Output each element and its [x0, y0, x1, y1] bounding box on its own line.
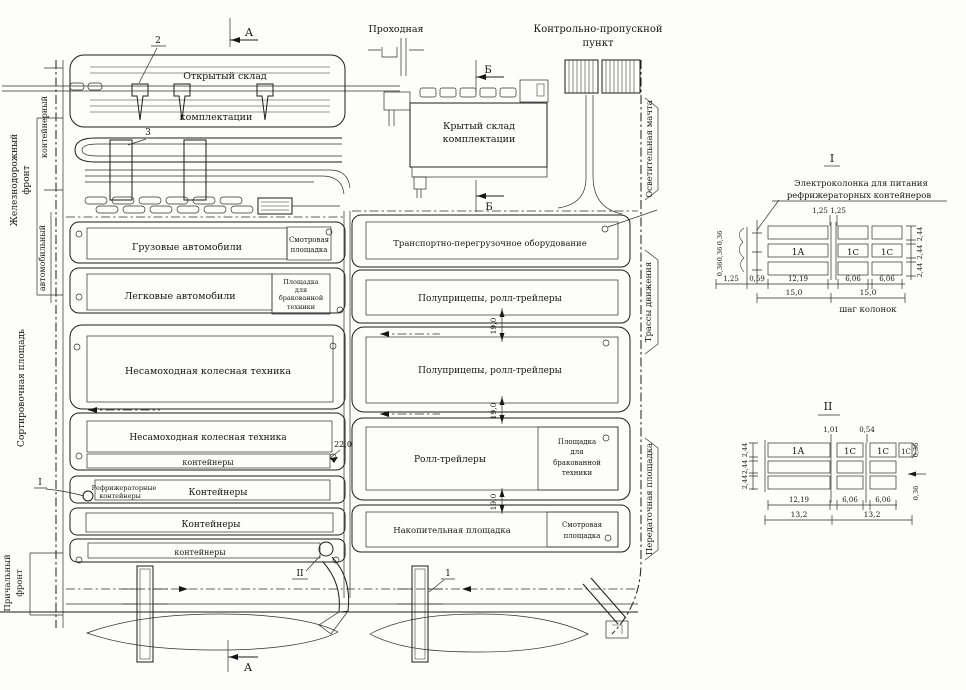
dim-label: 2,44: [741, 443, 749, 457]
dock-bump: [480, 88, 496, 97]
left-column: Грузовые автомобили Смотровая площадка Л…: [70, 222, 345, 579]
block-containers-2: Контейнеры: [70, 508, 345, 535]
dim-19-2: 19,0: [489, 396, 505, 424]
dim-label: 15,0: [786, 288, 803, 297]
loading-band: [412, 167, 547, 177]
dim-19-3: 19,0: [489, 488, 505, 514]
mast-circle: [76, 453, 82, 459]
sorting-area-label: Сортировочная площадь: [17, 329, 27, 447]
detail-ii: II 1А 1С 1С 1С 1,01 0,54 2,44 2,44 2,44: [741, 400, 926, 525]
section-a-top-label: А: [245, 26, 254, 39]
automobile-front-label: автомобильный: [38, 225, 47, 291]
rejected-pad-right-label: Площадка: [558, 438, 596, 446]
rejected-pad-label: техники: [287, 303, 315, 311]
mast-circle: [605, 535, 611, 541]
berth-front-label-1: Причальный: [3, 554, 13, 612]
gatehouse-gate: [368, 38, 424, 76]
rejected-pad-label: Площадка: [283, 278, 319, 286]
detail-ii-cell-1c: 1С: [901, 448, 911, 456]
covered-warehouse-label-2: комплектации: [443, 134, 516, 145]
detail-i-cell-1a: 1А: [792, 248, 805, 258]
right-column: Транспортно-перегрузочное оборудование П…: [352, 210, 657, 592]
traffic-routes-label: Трассы движения: [644, 262, 654, 342]
transfer-area-label: Передаточная площадка: [645, 443, 655, 555]
rejected-pad-label: бракованной: [279, 294, 323, 302]
reefer-label-2: контейнеры: [99, 492, 141, 500]
checkpoint-building: [602, 60, 640, 93]
drawing-canvas: контейнерный Железнодорожный фронт автом…: [0, 0, 966, 690]
rail-crossing-ticks: [122, 589, 443, 604]
section-b-bottom-label: Б: [485, 202, 492, 213]
mast-leader: [608, 210, 657, 227]
detail-i-cell-1c: 1С: [847, 248, 859, 258]
checkpoint-label-2: пункт: [583, 38, 614, 49]
berth-area: А: [0, 557, 638, 674]
callout-3: 3: [145, 128, 151, 138]
detail-ii-target-circle: [319, 542, 333, 556]
block-wheeled-1-label: Несамоходная колесная техника: [125, 366, 291, 377]
rejected-pad-label: для: [295, 286, 307, 294]
road-arrow: [88, 407, 97, 413]
section-a-bottom-label: А: [244, 661, 253, 674]
callout-detail-ii: II: [296, 569, 304, 579]
dim-label: 2,44: [916, 227, 924, 241]
inspection-pad-right-label: Смотровая: [562, 521, 603, 529]
rail-wagon: [70, 83, 84, 90]
road-arrow: [380, 331, 389, 337]
dim-label: 0,36: [716, 231, 724, 245]
containers-label-2: Контейнеры: [182, 520, 241, 530]
open-warehouse-label-1: Открытый склад: [183, 71, 267, 82]
reefer-label-1: Рефрижераторные: [92, 484, 157, 492]
dim-label: 2,44: [916, 245, 924, 259]
block-trucks-label: Грузовые автомобили: [132, 242, 242, 253]
dim-label: 0,36: [912, 486, 920, 500]
open-warehouse-label-2: комплектации: [180, 112, 253, 123]
dim-label: 13,2: [791, 510, 808, 519]
inspection-pad-right-label: площадка: [564, 532, 601, 540]
rail-loop-inner: [82, 144, 342, 156]
lighting-mast-label: Осветительная мачта: [645, 100, 655, 198]
rail-wagon: [88, 83, 102, 90]
block-containers-strip: контейнеры II: [70, 539, 345, 579]
detail-ii-cell-1c: 1С: [844, 447, 856, 457]
block-rolltrailers: Ролл-трейлеры Площадка для бракованной т…: [352, 418, 630, 500]
dim-label: 0,36: [716, 247, 724, 261]
railway-front-label-2: фронт: [22, 165, 32, 194]
checkpoint: Контрольно-пропускной пункт: [352, 24, 663, 214]
dim-label: 2,44: [741, 460, 749, 474]
checkpoint-label-1: Контрольно-пропускной: [533, 24, 662, 35]
gatehouse-label: Проходная: [368, 24, 423, 35]
terminal-plan-drawing: контейнерный Железнодорожный фронт автом…: [0, 0, 966, 690]
rail-loop-outer: [75, 138, 342, 162]
block-cars-label: Легковые автомобили: [124, 291, 235, 302]
covered-warehouse: Крытый склад комплектации Б Б: [384, 60, 548, 213]
detail-i-cell-1c: 1С: [881, 248, 893, 258]
right-edge: Осветительная мачта Трассы движения Пере…: [612, 60, 658, 634]
section-b-top-label: Б: [484, 65, 491, 76]
block-trucks: Грузовые автомобили Смотровая площадка: [70, 222, 345, 263]
dim-label: 0,59: [749, 275, 765, 283]
rejected-pad-right-label: для: [570, 448, 584, 456]
left-edge: контейнерный Железнодорожный фронт автом…: [3, 60, 84, 628]
section-b-top: Б: [476, 60, 504, 92]
dim-brace: [739, 228, 744, 272]
detail-i: I Электроколонка для питания рефрижерато…: [716, 152, 947, 315]
rail-tracks-middle: [85, 170, 350, 194]
callout-1-leader: [429, 579, 455, 592]
dim-label: 1,01: [823, 426, 839, 434]
block-cars: Легковые автомобили Площадка для бракова…: [70, 268, 345, 314]
rail-spur: [2, 86, 400, 91]
ship-left: [87, 614, 338, 650]
dim-label: 15,0: [860, 288, 877, 297]
dim-label: 6,06: [845, 275, 861, 283]
block-handling-equipment: Транспортно-перегрузочное оборудование: [352, 210, 657, 267]
containers-label-1: Контейнеры: [189, 488, 248, 498]
detail-ii-dims: 1,01 0,54 2,44 2,44 2,44 0,36 0,36 12,19…: [741, 426, 926, 525]
berth-front-label-2: фронт: [15, 569, 25, 597]
containers-strip-label-1: контейнеры: [182, 458, 234, 467]
detail-i-title: I: [830, 152, 834, 165]
dock-bump: [460, 88, 476, 97]
callout-2-leader: [139, 46, 166, 83]
inspection-pad-box-right: [547, 512, 618, 547]
rejected-pad-right-label: техники: [562, 469, 593, 477]
dim-label: 0,54: [859, 426, 875, 434]
side-tab: [414, 177, 426, 189]
dim-label: 1,25: [830, 207, 846, 215]
corner-ramp: [583, 578, 626, 624]
dim-label: 2,44: [741, 475, 749, 489]
detail-i-caption-1: Электроколонка для питания: [794, 179, 928, 189]
ship-right: [370, 614, 588, 652]
mast-circle: [76, 294, 82, 300]
section-a-top-arrow: [231, 37, 240, 43]
mast-circle: [76, 231, 82, 237]
block-accumulation: Накопительная площадка Смотровая площадк…: [352, 505, 630, 552]
detail-i-caption-leader: [757, 200, 947, 230]
dock-bump: [440, 88, 456, 97]
block-wheeled-2: Несамоходная колесная техника контейнеры: [70, 413, 345, 470]
block-wheeled-2-label: Несамоходная колесная техника: [129, 433, 287, 443]
block-rolltrailers-label: Ролл-трейлеры: [414, 455, 486, 465]
detail-ii-cell-1c: 1С: [877, 447, 889, 457]
road-arrow: [179, 586, 188, 592]
section-b-bottom: Б: [476, 180, 504, 213]
covered-warehouse-label-1: Крытый склад: [443, 121, 515, 132]
portal-crane-icon: [132, 84, 148, 120]
mast-circle: [74, 344, 80, 350]
detail-i-note: шаг колонок: [839, 305, 897, 315]
inspection-pad-label-1: Смотровая: [289, 236, 330, 244]
block-accumulation-label: Накопительная площадка: [393, 526, 511, 536]
side-tab: [384, 92, 410, 110]
gatehouse: Проходная: [368, 24, 424, 76]
dim-label: 1,25: [812, 207, 828, 215]
mast-circle: [603, 340, 609, 346]
section-a-bottom: А: [228, 640, 258, 674]
container-front-label: контейнерный: [40, 96, 49, 158]
inspection-pad-label-2: площадка: [291, 246, 328, 254]
dim-22-arrow: [330, 457, 338, 463]
block-semitrailers-1-label: Полуприцепы, ролл-трейлеры: [418, 294, 562, 304]
dim-label: 12,19: [789, 496, 809, 504]
railway-front-label-1: Железнодорожный: [10, 134, 20, 226]
entrance-road: [558, 95, 622, 214]
containers-strip-label-2: контейнеры: [174, 548, 226, 557]
block-wheeled-1: Несамоходная колесная техника: [70, 325, 345, 409]
roro-ramp-wedge: [319, 611, 348, 634]
dock-bump: [420, 88, 436, 97]
dim-label: 12,19: [788, 275, 808, 283]
dim-19-label: 19,0: [489, 317, 498, 334]
dim-label: 13,2: [864, 510, 881, 519]
block-semitrailers-2: Полуприцепы, ролл-трейлеры: [352, 327, 630, 412]
dim-label: 1,25: [723, 275, 739, 283]
dim-19-label: 19,0: [489, 402, 498, 419]
dim-label: 6,06: [842, 496, 858, 504]
dim-22: 22,0: [334, 440, 352, 449]
callout-2: 2: [155, 36, 161, 46]
crane-rail-left: [137, 566, 153, 662]
mast-circle: [603, 435, 609, 441]
dock-bump: [500, 88, 516, 97]
dim-19-label: 19,0: [489, 493, 498, 510]
dim-label: 6,06: [875, 496, 891, 504]
detail-ii-title: II: [824, 400, 833, 413]
portal-crane-icon: [257, 84, 273, 120]
detail-ii-grid: 1А 1С 1С 1С: [765, 440, 912, 503]
detail-ii-cell-1a: 1А: [792, 447, 805, 457]
boundary-line-right: [612, 60, 641, 634]
mast-circle: [602, 226, 608, 232]
detail-i-caption-2: рефрижераторных контейнеров: [787, 191, 932, 201]
rejected-pad-right-label: бракованной: [553, 459, 601, 467]
block-reefer-containers: Рефрижераторные контейнеры Контейнеры: [70, 476, 345, 503]
dim-label: 2,44: [916, 263, 924, 277]
block-semitrailers-1: Полуприцепы, ролл-трейлеры: [352, 270, 630, 323]
road-arrow: [462, 586, 471, 592]
railway-zone: 3: [66, 128, 350, 217]
dim-label: 6,06: [879, 275, 895, 283]
crane-rail-right: [412, 566, 428, 662]
detail-i-dims: 1,25 1,25 0,36 0,36 0,36 1,25 0,59 12,19…: [716, 207, 924, 315]
block-handling-label: Транспортно-перегрузочное оборудование: [393, 238, 587, 249]
callout-1: 1: [445, 569, 451, 579]
reefer-column-circle: [83, 491, 93, 501]
callout-detail-i: I: [38, 478, 42, 488]
central-road-lines: [344, 211, 350, 598]
callout-detail-i-leader: [34, 488, 84, 496]
block-semitrailers-2-label: Полуприцепы, ролл-трейлеры: [418, 366, 562, 376]
